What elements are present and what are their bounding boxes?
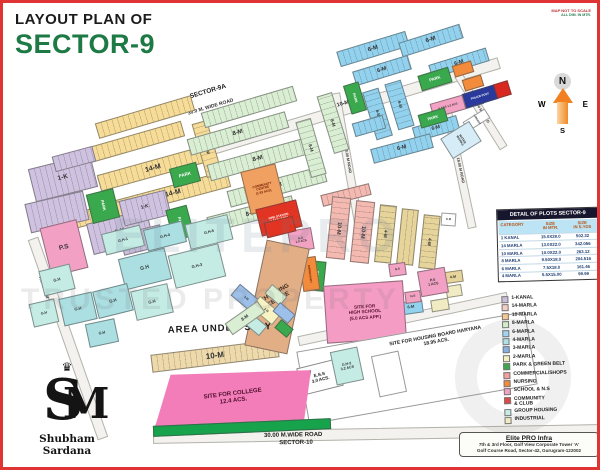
legend-swatch (504, 397, 511, 404)
legend-label: 3-MARLA (513, 344, 597, 351)
legend-item: INDUSTRIAL (504, 415, 598, 424)
map-g-h: G.H (130, 283, 174, 321)
legend-label: 1-KANAL (511, 294, 595, 301)
legend-item: COMMUNITY & CLUB (504, 394, 598, 407)
legend-swatch (502, 321, 509, 328)
corner-note: MAP NOT TO SCALE ALL DIM. IN MTR. (551, 8, 591, 18)
legend-label: 6-MARLA (512, 327, 596, 334)
table-row: 4 MARLA5.5X15.0099.99 (500, 269, 599, 279)
map-g-h: G.H (58, 292, 97, 327)
company-address-line2: Golf Course Road, Sector-42, Gurugram-12… (461, 448, 597, 454)
legend-label: NURSING (514, 378, 598, 385)
company-name: Elite PRO Infra (461, 435, 597, 442)
legend-swatch (503, 355, 510, 362)
legend-label: 10-MARLA (512, 311, 596, 318)
legend-swatch (501, 296, 508, 303)
map-block (396, 208, 419, 265)
ps-right: P.S 1 ACS (417, 267, 449, 297)
company-info-box: Elite PRO Infra 7th & 3rd Floor, Golf Vi… (459, 432, 599, 457)
compass-south: S (560, 126, 565, 135)
map-n-s: N.S (404, 290, 422, 304)
legend-label: 4-MARLA (512, 336, 596, 343)
label-sector-10: SECTOR-10 (251, 438, 341, 449)
detail-of-plots-panel: DETAIL OF PLOTS SECTOR-9 CATEGORYSIZE IN… (496, 207, 600, 283)
logo-name: Shubham Sardana (17, 433, 117, 457)
legend-label: SCHOOL & N.S (514, 386, 598, 393)
map-10-m: 10-M (326, 196, 351, 260)
legend-label: 8-MARLA (512, 319, 596, 326)
compass-east: E (583, 100, 588, 109)
detail-table-rows: 1 KANAL15.0X28.0502.3214 MARLA13.0X22.03… (498, 231, 600, 279)
legend-label: COMMERCIAL/SHOPS (513, 369, 597, 376)
map-g-h: G.H (92, 283, 134, 319)
legend-swatch (504, 388, 511, 395)
legend-swatch (502, 330, 509, 337)
legend-swatch (503, 372, 510, 379)
legend-label: PARK & GREEN BELT (513, 361, 597, 368)
red-strip (493, 80, 512, 99)
legend: 1-KANAL14-MARLA10-MARLA8-MARLA6-MARLA4-M… (501, 294, 598, 426)
compass-rose: N W E S (541, 73, 585, 135)
compass-arrow-stem (557, 102, 568, 124)
legend-label: 14-MARLA (512, 302, 596, 309)
legend-swatch (503, 363, 510, 370)
legend-swatch (504, 417, 511, 424)
map-1-k: 1-K (119, 190, 172, 227)
legend-swatch (502, 313, 509, 320)
legend-label: 2-MARLA (513, 353, 597, 360)
layout-plan-page: LAYOUT PLAN OF SECTOR-9 MAP NOT TO SCALE… (0, 0, 600, 470)
legend-label: GROUP HOUSING (514, 406, 598, 413)
shubham-sardana-logo: ♛ S M Shubham Sardana (17, 361, 117, 457)
map-g-h-3: G.H-3 (168, 243, 227, 289)
legend-swatch (503, 346, 510, 353)
legend-label: INDUSTRIAL (514, 415, 598, 422)
table-header: CATEGORY (498, 222, 534, 233)
sm-monogram: S M (17, 373, 117, 429)
monogram-m: M (63, 379, 110, 428)
map-4-m: 4-M (418, 214, 441, 269)
site-for-college: SITE FOR COLLEGE 12.4 ACS. (155, 369, 311, 427)
map-n-s: N.S (388, 262, 407, 277)
compass-west: W (538, 100, 546, 109)
title-sector: SECTOR-9 (15, 29, 155, 60)
legend-swatch (504, 409, 511, 416)
legend-label: COMMUNITY & CLUB (514, 394, 598, 407)
map-4-m: 4-M (374, 204, 397, 263)
legend-swatch (502, 338, 509, 345)
cb-block: C.B (441, 212, 457, 226)
table-header: SIZE IN MTR. (534, 221, 568, 232)
compass-arrow-icon (553, 88, 573, 103)
legend-swatch (502, 304, 509, 311)
legend-swatch (504, 380, 511, 387)
title-prefix: LAYOUT PLAN OF (15, 11, 155, 28)
map-6-m: 6-M (398, 24, 464, 58)
page-title: LAYOUT PLAN OF SECTOR-9 (15, 11, 155, 60)
map-g-h: G.H (85, 318, 119, 348)
corner-note-line2: ALL DIM. IN MTR. (551, 13, 591, 18)
table-header: SIZE IN S.YDS (567, 220, 598, 230)
